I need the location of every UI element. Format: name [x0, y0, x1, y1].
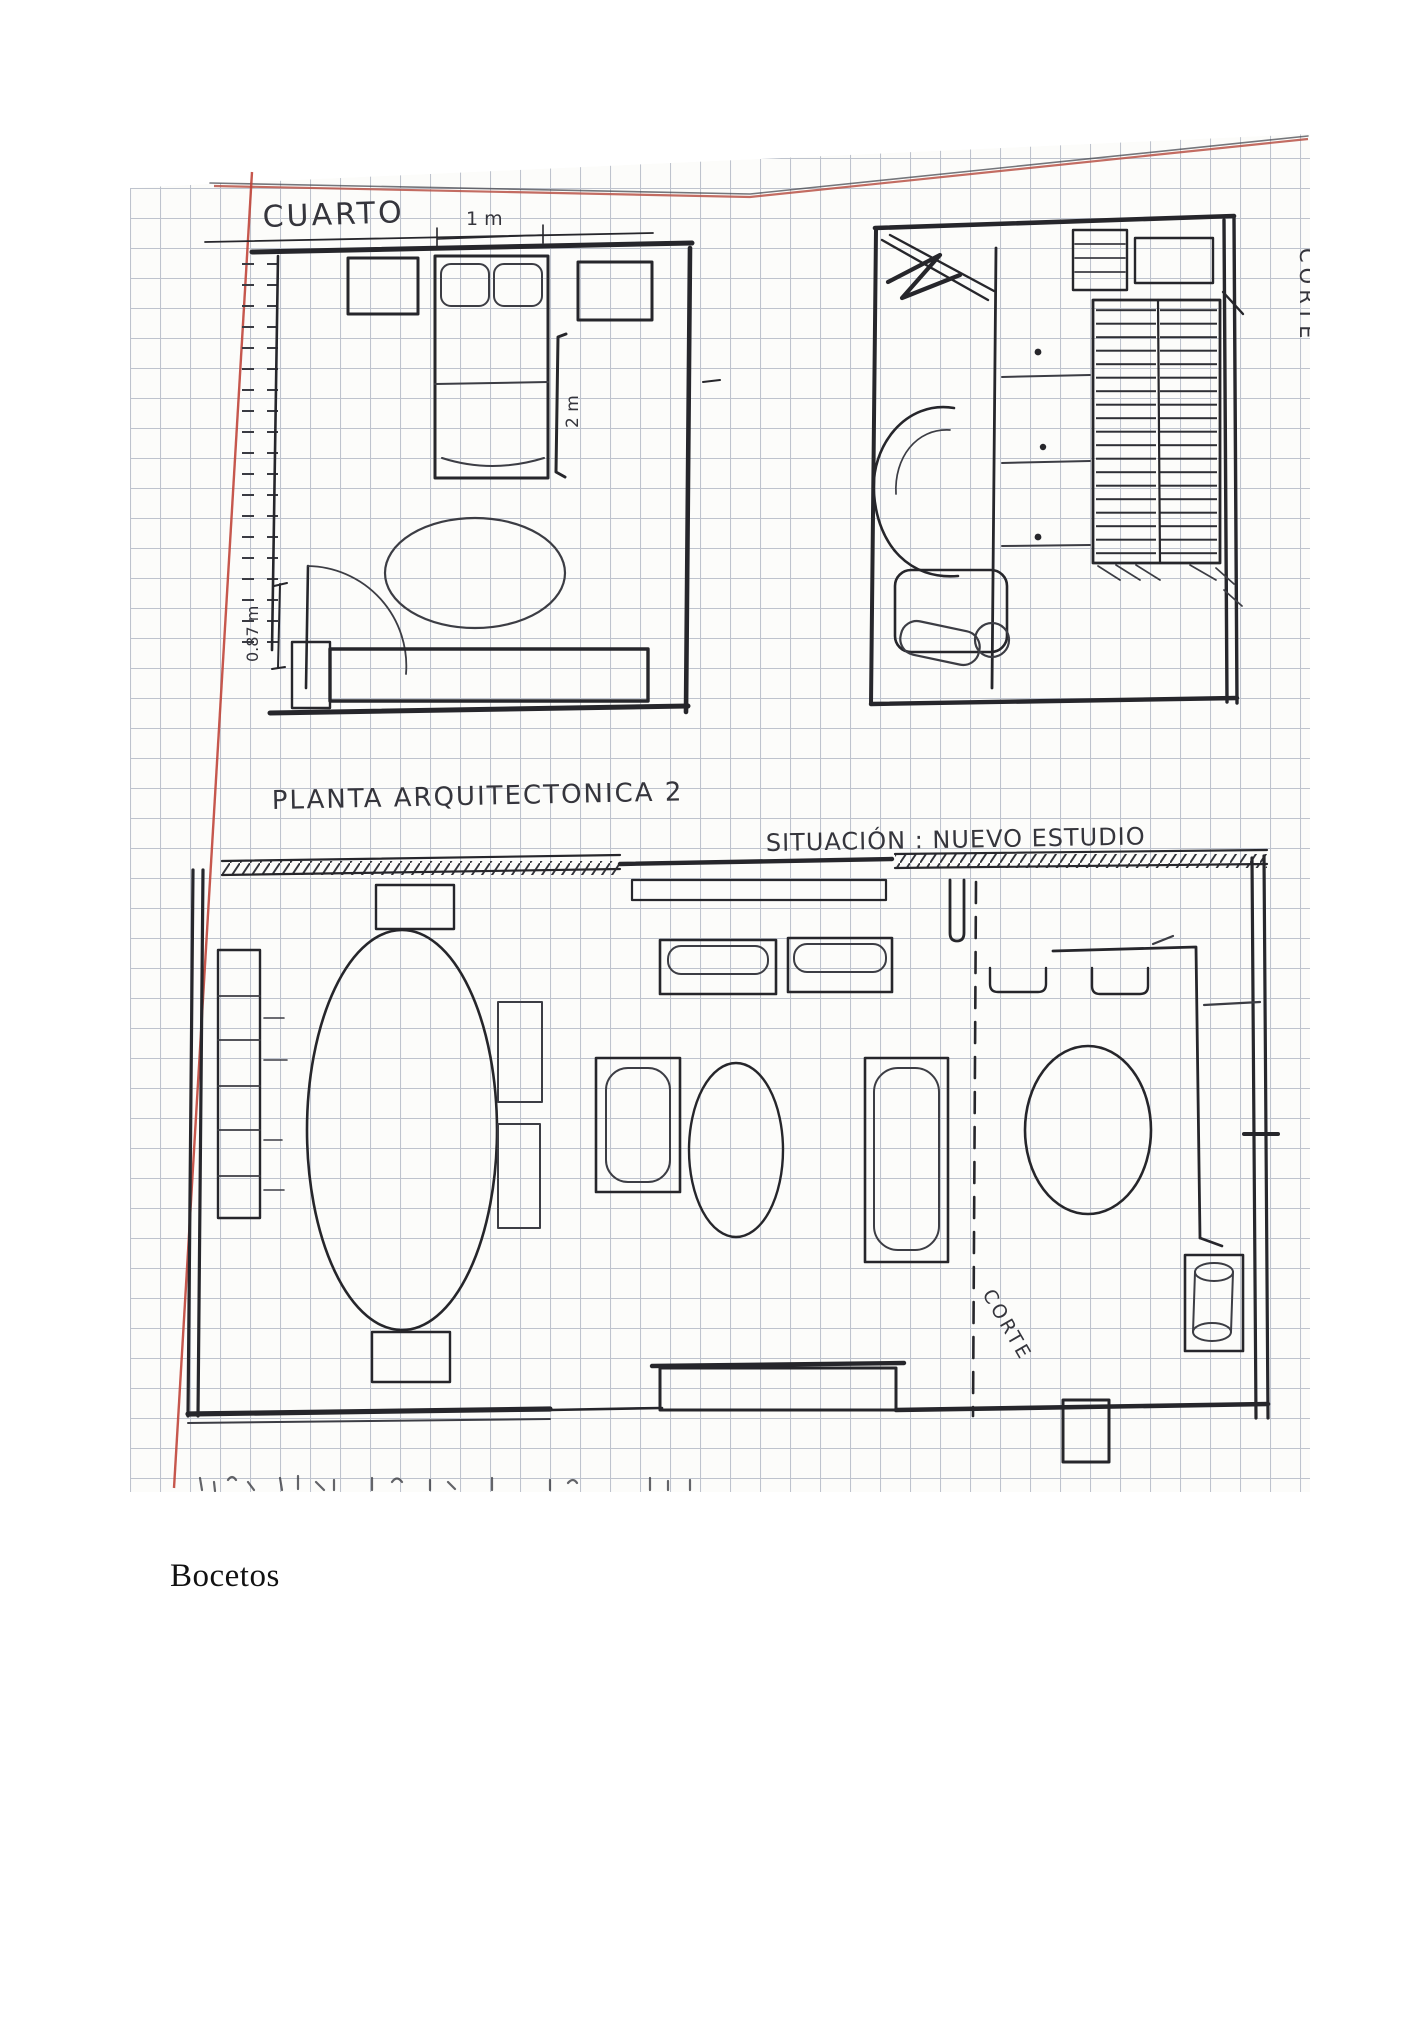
bookcase-rungs-right	[1160, 303, 1217, 560]
dimension-087m-label: 0.87 m	[243, 606, 262, 662]
console-top-edge	[652, 1363, 904, 1366]
bookcase-rungs-left	[1096, 303, 1156, 560]
handle-dot	[1035, 349, 1042, 356]
scanned-sketch-photo: CUARTO 1 m 2 m 0.87 m PLANTA ARQUITECTON…	[130, 128, 1310, 1492]
dimension-2m-label: 2 m	[563, 395, 583, 428]
handle-dot	[1040, 444, 1046, 450]
caption-bocetos: Bocetos	[170, 1558, 280, 1595]
floorplan-sketch-svg: CUARTO 1 m 2 m 0.87 m PLANTA ARQUITECTON…	[130, 128, 1310, 1492]
dimension-1m-label: 1 m	[466, 208, 503, 230]
corte-label-right: CORTE	[1295, 248, 1310, 343]
room-title-label: CUARTO	[262, 195, 405, 235]
handle-dot	[1035, 534, 1042, 541]
